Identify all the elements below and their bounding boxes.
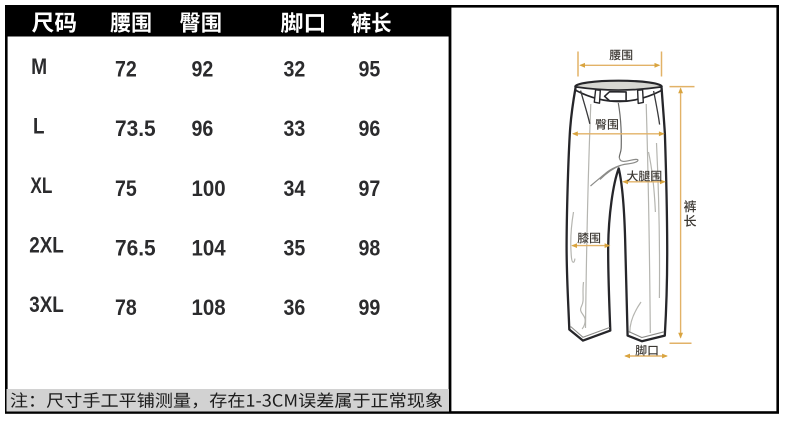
svg-text:72: 72 xyxy=(115,57,137,82)
svg-text:36: 36 xyxy=(284,295,306,320)
svg-text:104: 104 xyxy=(192,235,227,260)
svg-text:96: 96 xyxy=(359,116,381,141)
svg-text:92: 92 xyxy=(192,57,214,82)
svg-text:3XL: 3XL xyxy=(29,292,64,317)
svg-text:95: 95 xyxy=(359,57,381,82)
svg-text:98: 98 xyxy=(359,235,381,260)
svg-text:99: 99 xyxy=(359,295,381,320)
svg-text:76.5: 76.5 xyxy=(115,235,156,260)
svg-text:32: 32 xyxy=(284,57,306,82)
svg-text:108: 108 xyxy=(192,295,226,320)
svg-text:33: 33 xyxy=(284,116,306,141)
svg-text:XL: XL xyxy=(30,173,52,198)
svg-text:78: 78 xyxy=(115,295,137,320)
svg-text:35: 35 xyxy=(284,235,306,260)
svg-text:34: 34 xyxy=(284,176,306,201)
svg-text:73.5: 73.5 xyxy=(115,116,156,141)
svg-text:96: 96 xyxy=(192,116,214,141)
svg-text:M: M xyxy=(31,54,47,79)
svg-text:L: L xyxy=(33,113,45,138)
svg-text:2XL: 2XL xyxy=(29,233,64,258)
svg-text:97: 97 xyxy=(359,176,381,201)
svg-text:75: 75 xyxy=(115,176,137,201)
svg-text:100: 100 xyxy=(192,176,226,201)
